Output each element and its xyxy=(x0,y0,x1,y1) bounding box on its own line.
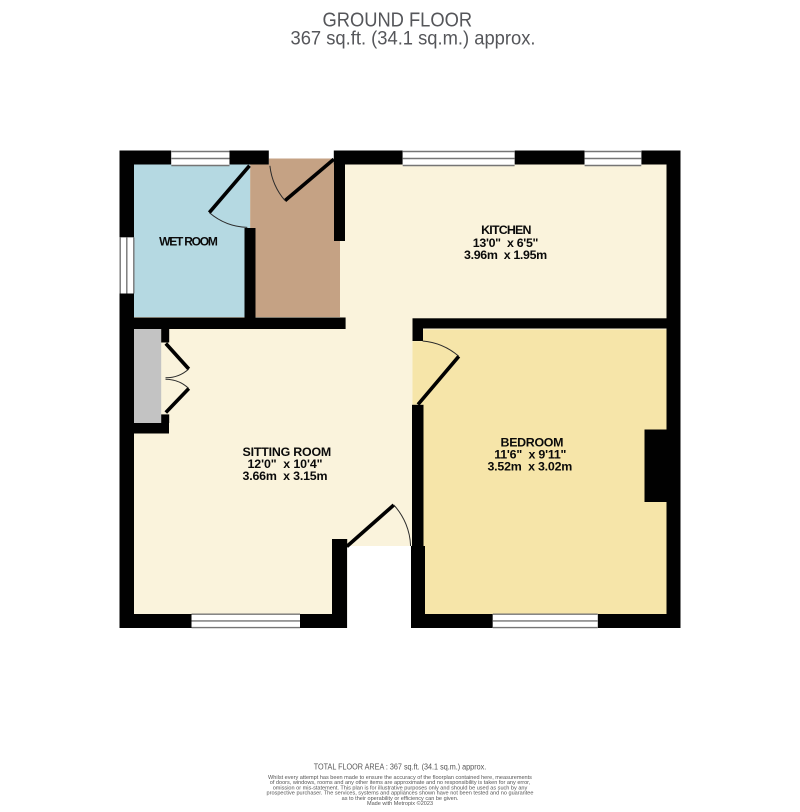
svg-text:TOTAL FLOOR AREA : 367 sq.ft.: TOTAL FLOOR AREA : 367 sq.ft. (34.1 sq.m… xyxy=(314,761,487,771)
svg-text:3.52m x 3.02m: 3.52m x 3.02m xyxy=(488,460,573,474)
svg-text:KITCHEN: KITCHEN xyxy=(481,223,531,237)
svg-text:367 sq.ft. (34.1 sq.m.) approx: 367 sq.ft. (34.1 sq.m.) approx. xyxy=(291,28,536,50)
svg-text:3.66m x 3.15m: 3.66m x 3.15m xyxy=(243,469,328,483)
svg-text:WET ROOM: WET ROOM xyxy=(159,234,218,248)
svg-text:3.96m x 1.95m: 3.96m x 1.95m xyxy=(464,248,547,262)
svg-text:Made with Metropix ©2023: Made with Metropix ©2023 xyxy=(367,800,433,807)
